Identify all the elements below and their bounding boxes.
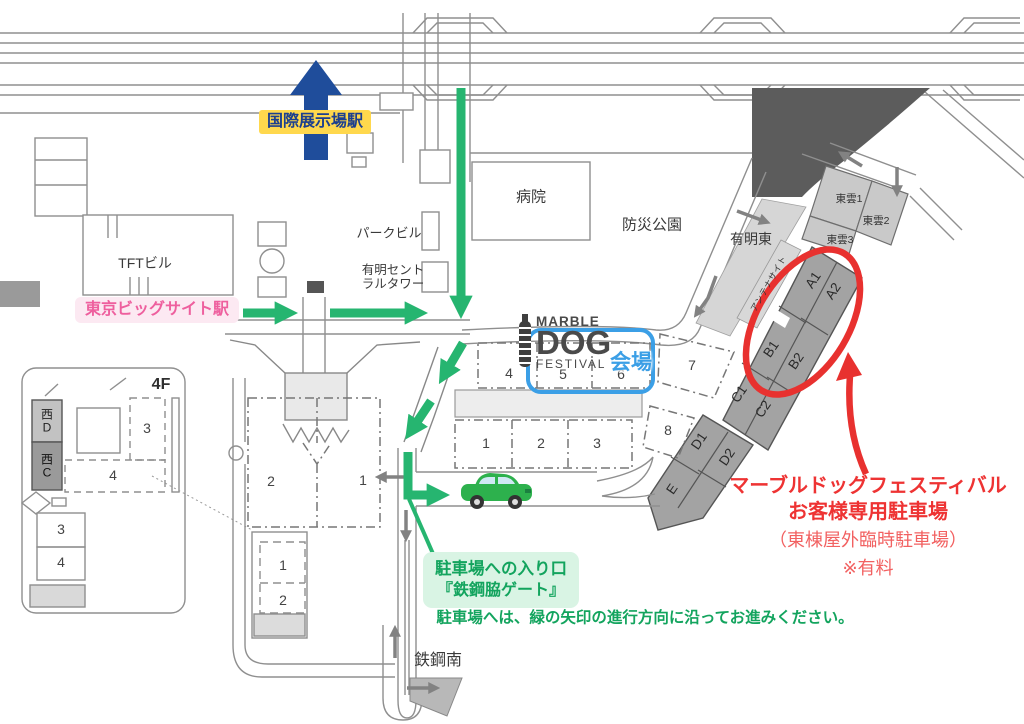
red-note-line2: お客様専用駐車場 [788, 501, 948, 523]
festival-logo-icon [519, 314, 531, 367]
hall-label-south-2: 2 [279, 593, 287, 609]
hall-label-east-1: 1 [482, 436, 490, 452]
gate-label-line2: 『鉄鋼脇ゲート』 [435, 580, 567, 602]
car-icon [461, 473, 532, 509]
tekko-minami-block [410, 678, 462, 716]
hall-label-west-d: 西 D [41, 408, 53, 433]
hall-label-east-2: 2 [537, 436, 545, 452]
hall-label-annex-lower-3: 3 [57, 522, 65, 538]
hospital-label: 病院 [516, 190, 546, 207]
route-instruction-label: 駐車場へは、緑の矢印の進行方向に沿ってお進みください。 [436, 609, 853, 626]
red-arrow-head [836, 352, 862, 381]
access-map: 国際展示場駅 東京ビッグサイト駅 病院 防災公園 有明東 パークビル 有明セント… [0, 0, 1024, 724]
shinonome-1-label: 東雲1 [836, 194, 863, 206]
bigsight-station-label: 東京ビッグサイト駅 [75, 297, 239, 323]
tft-building-label: TFTビル [118, 256, 172, 272]
red-note-line3: （東棟屋外臨時駐車場） [769, 530, 967, 550]
red-note-line1: マーブルドッグフェスティバル [729, 475, 1007, 497]
gate-label-line1: 駐車場への入り口 [435, 558, 567, 580]
hall-label-east-7: 7 [688, 358, 696, 374]
bigsight-core [230, 340, 456, 452]
shinonome-3-label: 東雲3 [827, 235, 854, 247]
bosai-park-label: 防災公園 [622, 218, 682, 235]
festival-logo-festival: FESTIVAL [536, 357, 611, 371]
gate-label-box: 駐車場への入り口 『鉄鋼脇ゲート』 [423, 552, 579, 608]
ariake-central-tower-label: 有明セント ラルタワー [362, 263, 425, 291]
floor-4f-label: 4F [152, 376, 171, 394]
hall-label-annex-upper-4: 4 [109, 468, 117, 484]
hall-label-west-c: 西 C [41, 453, 53, 478]
venue-label: 会場 [610, 351, 652, 375]
east-gallery [455, 390, 642, 417]
festival-logo: MARBLE DOG FESTIVAL [536, 314, 611, 371]
ariake-higashi-label: 有明東 [730, 232, 772, 248]
west-annex-4f [22, 368, 185, 613]
kokusai-station-label: 国際展示場駅 [259, 110, 371, 134]
hall-label-east-3: 3 [593, 436, 601, 452]
dotted-boundary [152, 476, 252, 530]
hall-label-annex-upper-3: 3 [143, 421, 151, 437]
hall-label-south-1: 1 [279, 558, 287, 574]
hall-label-annex-lower-4: 4 [57, 555, 65, 571]
hall-label-east-4: 4 [505, 366, 513, 382]
red-arrow [849, 376, 866, 474]
festival-logo-dog: DOG [536, 329, 611, 357]
south-building [252, 532, 307, 638]
buildings-left [0, 138, 233, 307]
park-building-label: パークビル [356, 227, 421, 242]
shinonome-2-label: 東雲2 [863, 216, 890, 228]
hall-label-west-2: 2 [267, 474, 275, 490]
hall-label-west-1: 1 [359, 473, 367, 489]
tekko-minami-label: 鉄鋼南 [414, 652, 462, 670]
hall-label-east-8: 8 [664, 423, 672, 439]
red-note-line4: ※有料 [842, 558, 893, 578]
